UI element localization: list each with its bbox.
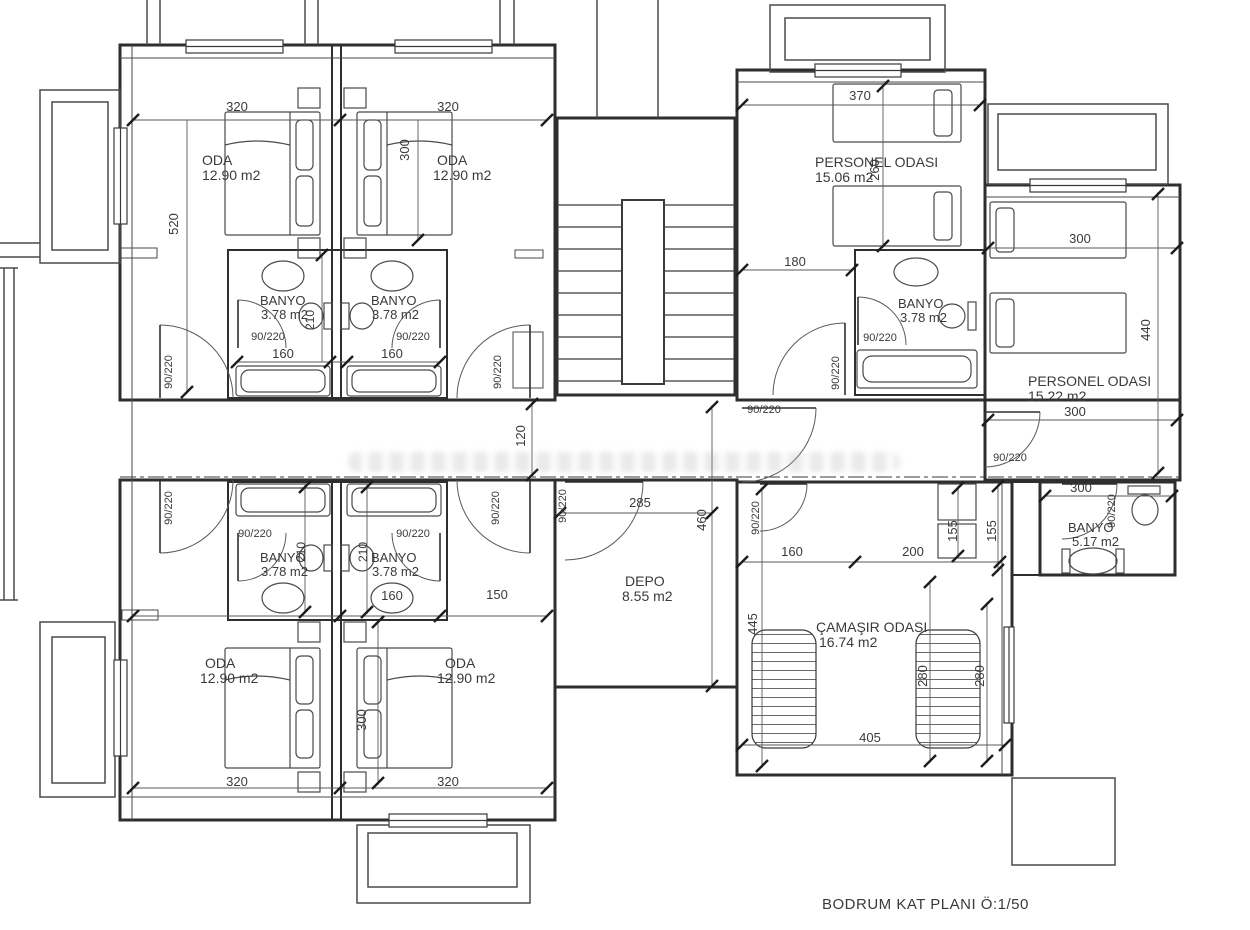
bed-personel2-a (990, 202, 1126, 258)
door-arc-depo (565, 482, 643, 560)
watermark (348, 452, 900, 472)
room-banyo4-name: BANYO (371, 550, 417, 565)
window (186, 40, 283, 53)
dim-300-personel2-top: 300 (1069, 231, 1091, 246)
window (1030, 179, 1126, 192)
room-depo-name: DEPO (625, 573, 665, 589)
block-top-left-outline (120, 45, 555, 400)
dim-320-bottom-right: 320 (437, 774, 459, 789)
dim-120-corridor: 120 (513, 425, 528, 447)
door-personel1: 90/220 (830, 356, 842, 390)
dim-160-banyo2: 160 (381, 346, 403, 361)
walls (120, 45, 1180, 820)
dim-320-bottom-left: 320 (226, 774, 248, 789)
room-oda2-name: ODA (437, 152, 468, 168)
dim-320-top-right: 320 (437, 99, 459, 114)
sink (262, 583, 304, 613)
sink (262, 261, 304, 291)
room-laundry-area: 16.74 m2 (819, 634, 878, 650)
room-banyo6-area: 5.17 m2 (1072, 534, 1119, 549)
stair-newel (622, 200, 664, 384)
window (395, 40, 492, 53)
window (114, 660, 127, 756)
plan-title: BODRUM KAT PLANI Ö:1/50 (822, 895, 1029, 913)
room-depo-area: 8.55 m2 (622, 588, 673, 604)
dim-520-left: 520 (166, 213, 181, 235)
window (114, 128, 127, 224)
door-arc-laundry (760, 484, 807, 531)
window (815, 64, 901, 77)
wall-inner-lines (120, 45, 1180, 820)
dim-155-a: 155 (945, 520, 960, 542)
balcony-bottom-center (357, 825, 530, 903)
toilet (1128, 486, 1160, 525)
bed-personel2-b (990, 293, 1126, 353)
room-banyo6-name: BANYO (1068, 520, 1114, 535)
room-banyo3-name: BANYO (260, 550, 306, 565)
room-banyo1-area: 3.78 m2 (261, 307, 308, 322)
room-oda1-area: 12.90 m2 (202, 167, 261, 183)
balcony-top-right (770, 5, 945, 72)
room-personel1-area: 15.06 m2 (815, 169, 874, 185)
dim-300-banyo6: 300 (1070, 480, 1092, 495)
bathtub (857, 350, 977, 388)
dim-440: 440 (1138, 319, 1153, 341)
balcony-right (988, 104, 1168, 184)
toilet (341, 303, 374, 329)
room-oda1-name: ODA (202, 152, 233, 168)
dim-210-top: 210 (303, 310, 317, 330)
dim-200-laundry: 200 (902, 544, 924, 559)
dim-180: 180 (784, 254, 806, 269)
bathtub (236, 366, 330, 396)
dim-160-bottom: 160 (381, 588, 403, 603)
door-banyo1: 90/220 (251, 331, 285, 343)
dim-370: 370 (849, 88, 871, 103)
bathrooms-top-outline (228, 250, 447, 398)
dim-285-depo: 285 (629, 495, 651, 510)
sink (1062, 548, 1124, 574)
dim-300-hall: 300 (1064, 404, 1086, 419)
washing-machine (916, 630, 980, 748)
room-banyo5-area: 3.78 m2 (900, 310, 947, 325)
door-depo: 90/220 (557, 489, 569, 523)
window (1004, 627, 1014, 723)
bathtub (347, 484, 441, 516)
dim-300-bottom: 300 (354, 709, 369, 731)
room-oda2-area: 12.90 m2 (433, 167, 492, 183)
dim-280-b: 280 (972, 665, 987, 687)
door-hall: 90/220 (993, 452, 1027, 464)
door-laundry: 90/220 (750, 501, 762, 535)
room-banyo3-area: 3.78 m2 (261, 564, 308, 579)
window (389, 814, 487, 827)
bed-oda3 (225, 622, 320, 792)
door-banyo2: 90/220 (396, 331, 430, 343)
bed-oda4 (344, 622, 452, 792)
room-oda3-name: ODA (205, 655, 236, 671)
dim-210-bottom-b: 210 (356, 542, 370, 562)
dim-160-laundry: 160 (781, 544, 803, 559)
block-bottom-left-outline (120, 480, 555, 820)
room-banyo2-name: BANYO (371, 293, 417, 308)
dim-445: 445 (745, 613, 760, 635)
bathtub (236, 484, 330, 516)
dim-160-banyo1: 160 (272, 346, 294, 361)
terrace-bottom-right (1012, 778, 1115, 865)
dim-460-depo: 460 (694, 509, 709, 531)
door-oda3: 90/220 (163, 491, 175, 525)
room-banyo1-name: BANYO (260, 293, 306, 308)
room-personel2-name: PERSONEL ODASI (1028, 373, 1151, 389)
room-oda4-area: 12.90 m2 (437, 670, 496, 686)
room-personel2-area: 15.22 m2 (1028, 388, 1087, 404)
bed-personel1-b (833, 186, 961, 246)
floor-plan-page: 320320300520ODA12.90 m2ODA12.90 m2BANYO3… (0, 0, 1250, 930)
stairs (557, 200, 735, 384)
room-banyo2-area: 3.78 m2 (372, 307, 419, 322)
shaft-outline (1012, 482, 1040, 575)
room-banyo4-area: 3.78 m2 (372, 564, 419, 579)
door-banyo4: 90/220 (396, 528, 430, 540)
dim-150-bottom: 150 (486, 587, 508, 602)
dim-155-b: 155 (984, 520, 999, 542)
door-oda4: 90/220 (490, 491, 502, 525)
dim-260: 260 (867, 159, 882, 181)
bathtub (347, 366, 441, 396)
door-oda2: 90/220 (492, 355, 504, 389)
dim-300-top: 300 (397, 139, 412, 161)
room-banyo5-name: BANYO (898, 296, 944, 311)
door-corridor-right: 90/220 (747, 404, 781, 416)
sink (894, 258, 938, 286)
dim-320-top-left: 320 (226, 99, 248, 114)
room-oda3-area: 12.90 m2 (200, 670, 259, 686)
door-oda1: 90/220 (163, 355, 175, 389)
door-banyo3: 90/220 (238, 528, 272, 540)
door-banyo5: 90/220 (863, 332, 897, 344)
sink (371, 261, 413, 291)
dim-405: 405 (859, 730, 881, 745)
room-laundry-name: ÇAMAŞIR ODASI (816, 619, 927, 635)
dim-280-a: 280 (915, 665, 930, 687)
room-oda4-name: ODA (445, 655, 476, 671)
